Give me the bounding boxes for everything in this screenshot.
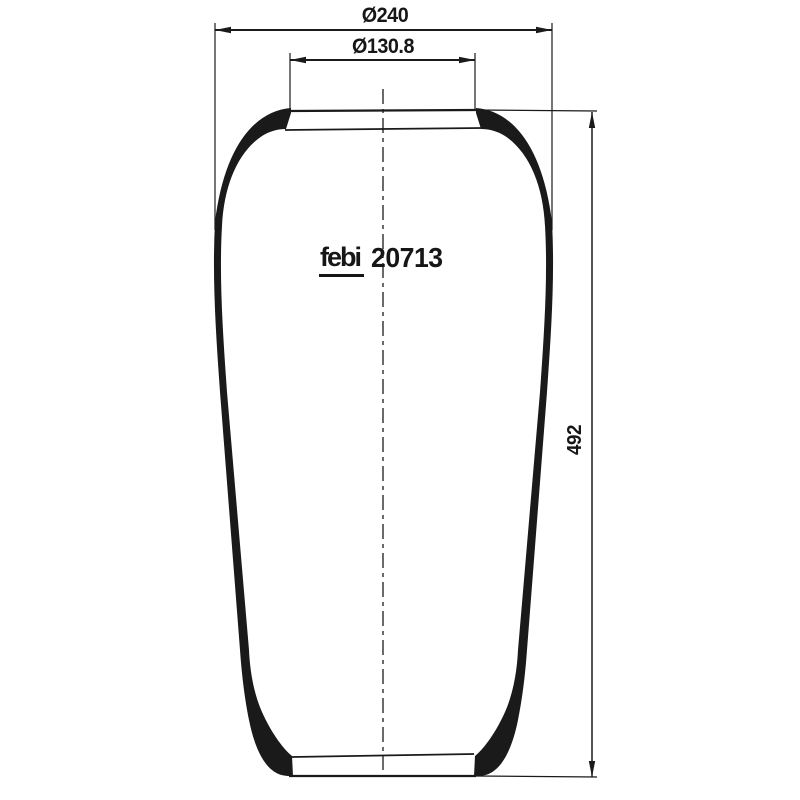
arrowhead-neck-right (459, 57, 475, 63)
air-spring-bellows-drawing (0, 0, 800, 800)
arrowhead-outer-left (215, 27, 231, 33)
top-edge-extension-line (476, 110, 597, 111)
bottom-edge-extension-line (476, 776, 597, 777)
febi-logo: febi (319, 243, 364, 277)
arrowhead-height-top (589, 112, 595, 128)
dimension-label-neck-diameter: Ø130.8 (333, 35, 433, 59)
part-number: 20713 (371, 243, 443, 274)
arrowhead-height-bottom (589, 761, 595, 777)
technical-drawing-canvas: Ø240 Ø130.8 492 febi 20713 (0, 0, 800, 800)
arrowhead-neck-left (290, 57, 306, 63)
dimension-label-height: 492 (564, 412, 590, 468)
bellows-cross-section-right (474, 108, 553, 776)
part-identification: febi 20713 (319, 243, 446, 277)
arrowhead-outer-right (536, 27, 552, 33)
bellows-cross-section-left (214, 108, 293, 776)
dimension-label-outer-diameter: Ø240 (341, 4, 429, 28)
